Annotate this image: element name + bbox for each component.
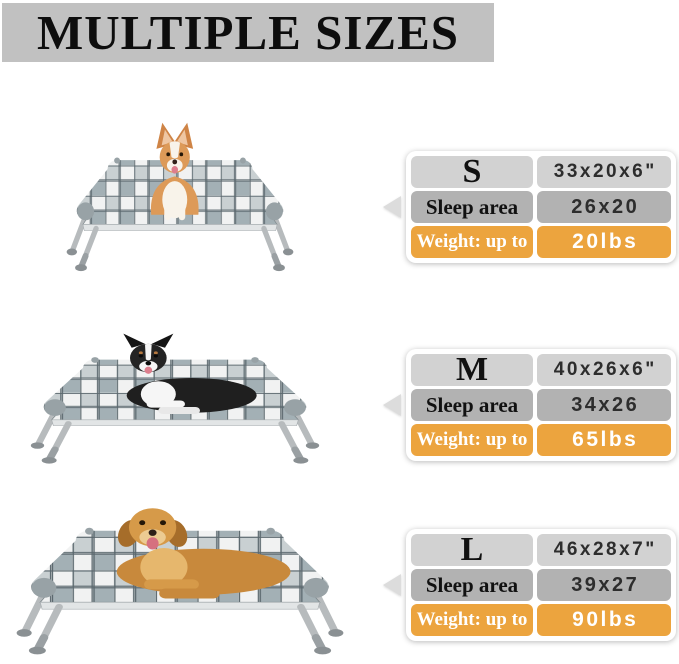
size-label: S xyxy=(411,156,533,188)
sleep-area-value: 26x20 xyxy=(537,191,671,223)
size-label: M xyxy=(411,354,533,386)
size-dimensions: 40x26x6" xyxy=(537,354,671,386)
spec-table-l: L 46x28x7" Sleep area 39x27 Weight: up t… xyxy=(411,534,671,636)
size-card-l: L 46x28x7" Sleep area 39x27 Weight: up t… xyxy=(406,529,676,641)
size-dimensions: 46x28x7" xyxy=(537,534,671,566)
sleep-area-value: 34x26 xyxy=(537,389,671,421)
sleep-area-label: Sleep area xyxy=(411,569,533,601)
weight-value: 90lbs xyxy=(537,604,671,636)
size-card-m: M 40x26x6" Sleep area 34x26 Weight: up t… xyxy=(406,349,676,461)
weight-value: 20lbs xyxy=(537,226,671,258)
page-title: MULTIPLE SIZES xyxy=(37,4,459,61)
size-card-s: S 33x20x6" Sleep area 26x20 Weight: up t… xyxy=(406,151,676,263)
spec-table-m: M 40x26x6" Sleep area 34x26 Weight: up t… xyxy=(411,354,671,456)
weight-value: 65lbs xyxy=(537,424,671,456)
weight-label: Weight: up to xyxy=(411,604,533,636)
weight-label: Weight: up to xyxy=(411,226,533,258)
sleep-area-label: Sleep area xyxy=(411,191,533,223)
multiple-sizes-infographic: MULTIPLE SIZES S 33x20x6" Sleep are xyxy=(0,0,679,664)
sleep-area-label: Sleep area xyxy=(411,389,533,421)
spec-table-s: S 33x20x6" Sleep area 26x20 Weight: up t… xyxy=(411,156,671,258)
product-photo-size-m xyxy=(25,322,325,470)
size-label: L xyxy=(411,534,533,566)
product-photo-size-l xyxy=(10,486,350,662)
title-banner: MULTIPLE SIZES xyxy=(2,3,494,62)
weight-label: Weight: up to xyxy=(411,424,533,456)
product-photo-size-s xyxy=(62,120,298,278)
size-dimensions: 33x20x6" xyxy=(537,156,671,188)
pointer-arrow-icon xyxy=(383,394,401,416)
pointer-arrow-icon xyxy=(383,196,401,218)
pointer-arrow-icon xyxy=(383,574,401,596)
sleep-area-value: 39x27 xyxy=(537,569,671,601)
